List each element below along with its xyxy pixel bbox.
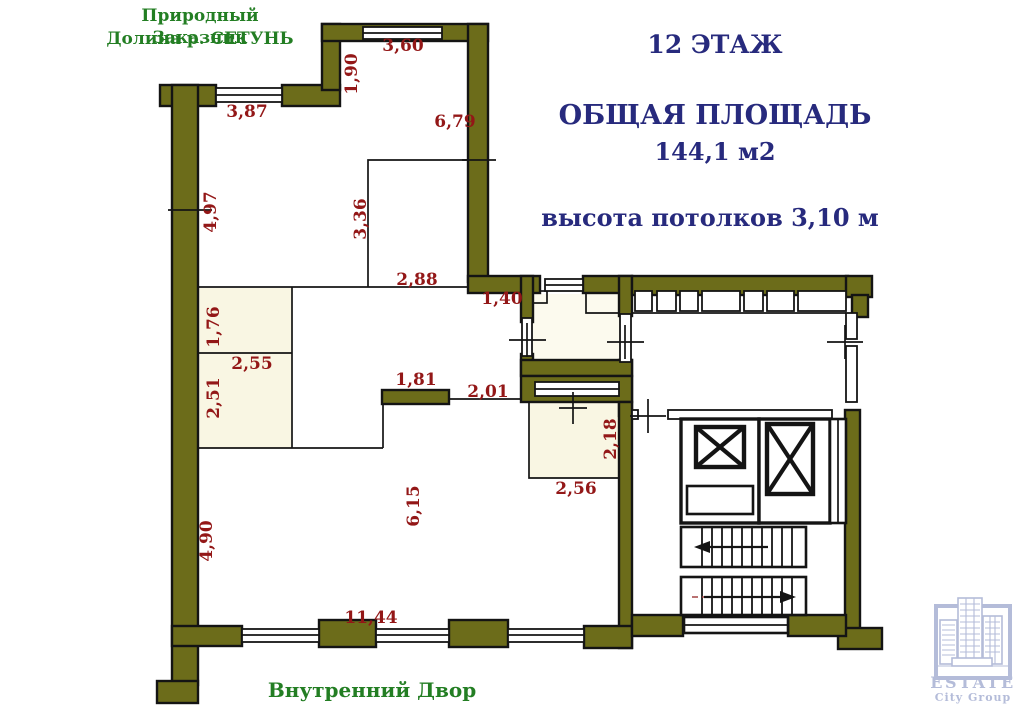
elevator-right [759,419,846,523]
elevator-left [681,419,759,523]
dimension-label: 2,18 [601,418,621,459]
courtyard-label: Внутренний Двор [252,678,492,702]
logo-subname: City Group [935,691,1011,704]
dimension-label: 2,55 [231,354,272,374]
total-area-title: ОБЩАЯ ПЛОЩАДЬ [545,100,885,131]
dimension-label: 2,88 [396,270,437,290]
dimension-label: 1,90 [342,53,362,94]
dimension-label: 3,60 [382,36,423,56]
nature-reserve-label-line2: Долина р. СЕТУНЬ [97,28,303,50]
logo-name: ESTATE [930,673,1015,692]
staircase [681,527,806,633]
hall-walls [632,313,857,419]
floor-title: 12 ЭТАЖ [550,30,880,59]
dimension-label: 11,44 [344,608,397,628]
corridor-glazing [633,291,846,313]
dimension-label: 2,01 [467,382,508,402]
dimension-label: 4,97 [201,191,221,232]
dimension-label: 3,87 [226,102,267,122]
dimension-label: 1,81 [395,370,436,390]
dimension-label: 2,56 [555,479,596,499]
dimension-label: 4,90 [197,520,217,561]
dimension-label: 2,51 [204,377,224,418]
logo-buildings-icon [938,598,1008,666]
dimension-label: 6,79 [434,112,475,132]
floor-plan-page: ESTATE City Group 3,601,903,876,794,973,… [0,0,1023,710]
estate-logo: ESTATE City Group [930,598,1015,704]
dimension-label: 1,40 [481,289,522,309]
total-area-value: 144,1 м2 [545,137,885,166]
dimension-label: 1,76 [204,306,224,347]
dimension-label: 6,15 [404,485,424,526]
ceiling-height-label: высота потолков 3,10 м [535,203,885,232]
dimension-label: 3,36 [351,198,371,239]
